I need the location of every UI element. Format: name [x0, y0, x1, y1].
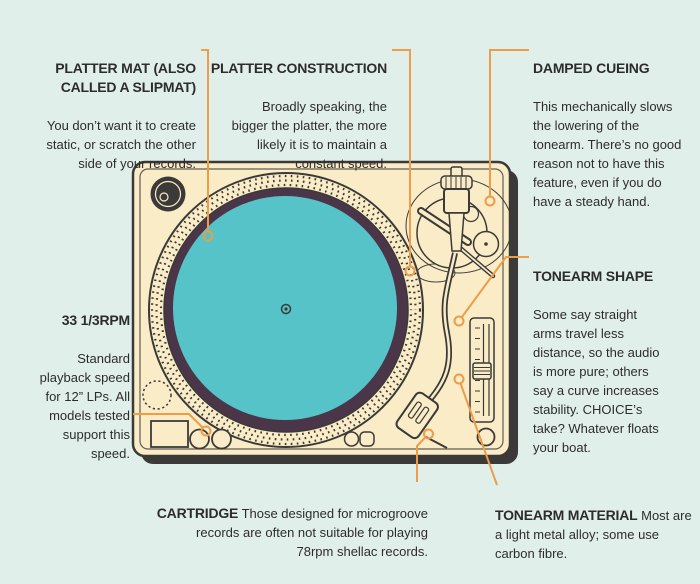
annotation-body: Standard playback speed for 12” LPs. All… — [8, 349, 130, 463]
annotation-damped-cueing: DAMPED CUEING This mechanically slows th… — [533, 40, 691, 230]
annotation-cartridge: CARTRIDGE Those designed for microgroove… — [130, 485, 428, 561]
annotation-body: Some say straight arms travel less dista… — [533, 305, 693, 457]
annotation-title: PLATTER CONSTRUCTION — [196, 59, 387, 78]
anti-skate-dial — [474, 232, 499, 257]
annotation-body: You don’t want it to create static, or s… — [14, 116, 196, 173]
platter — [149, 173, 423, 447]
annotation-rpm: 33 1/3RPM Standard playback speed for 12… — [8, 292, 130, 482]
annotation-title: PLATTER MAT (ALSO CALLED A SLIPMAT) — [14, 59, 196, 97]
annotation-body: Broadly speaking, the bigger the platter… — [196, 97, 387, 173]
pitch-knob — [473, 363, 491, 379]
annotation-lead: CARTRIDGE — [157, 505, 238, 521]
strobe-dial — [143, 381, 171, 409]
annotation-lead: TONEARM MATERIAL — [495, 507, 638, 523]
annotation-title: TONEARM SHAPE — [533, 267, 693, 286]
annotation-body: This mechanically slows the lowering of … — [533, 97, 691, 211]
annotation-tonearm-shape: TONEARM SHAPE Some say straight arms tra… — [533, 248, 693, 476]
annotation-tonearm-material: TONEARM MATERIAL Most are a light metal … — [495, 487, 700, 563]
annotation-title: DAMPED CUEING — [533, 59, 691, 78]
annotation-title: 33 1/3RPM — [8, 311, 130, 330]
annotation-platter-construction: PLATTER CONSTRUCTION Broadly speaking, t… — [196, 40, 387, 192]
spindle — [282, 305, 291, 314]
annotation-platter-mat: PLATTER MAT (ALSO CALLED A SLIPMAT) You … — [14, 40, 196, 192]
